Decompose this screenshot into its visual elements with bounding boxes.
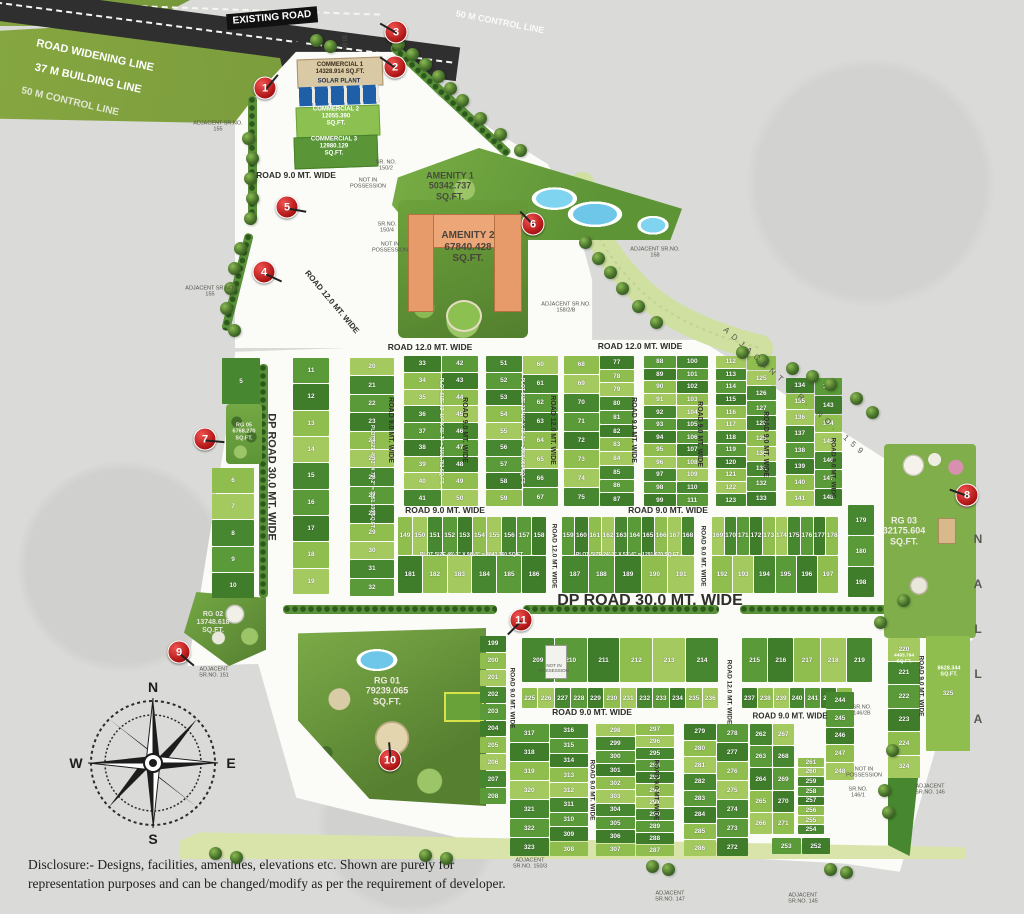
marker-11-number: 11 bbox=[515, 614, 527, 626]
marker-3: 3 bbox=[385, 21, 408, 44]
marker-9: 9 bbox=[168, 641, 191, 664]
marker-9-number: 9 bbox=[176, 646, 182, 658]
marker-5: 5 bbox=[276, 196, 299, 219]
marker-4-number: 4 bbox=[261, 266, 267, 278]
marker-10-number: 10 bbox=[384, 754, 396, 766]
marker-2: 2 bbox=[384, 56, 407, 79]
marker-11: 11 bbox=[510, 609, 533, 632]
markers-layer: 1234567891011 bbox=[0, 0, 1024, 914]
marker-8: 8 bbox=[956, 484, 979, 507]
marker-1-number: 1 bbox=[262, 82, 268, 94]
marker-3-number: 3 bbox=[393, 26, 399, 38]
marker-6: 6 bbox=[522, 213, 545, 236]
marker-7: 7 bbox=[194, 428, 217, 451]
site-master-plan: EXISTING ROAD ROAD WIDENING LINE 37 M BU… bbox=[0, 0, 1024, 914]
marker-5-number: 5 bbox=[284, 201, 290, 213]
marker-6-number: 6 bbox=[530, 218, 536, 230]
marker-4: 4 bbox=[253, 261, 276, 284]
marker-2-number: 2 bbox=[392, 61, 398, 73]
marker-7-number: 7 bbox=[202, 433, 208, 445]
marker-10: 10 bbox=[379, 749, 402, 772]
marker-1: 1 bbox=[254, 77, 277, 100]
marker-8-number: 8 bbox=[964, 489, 970, 501]
